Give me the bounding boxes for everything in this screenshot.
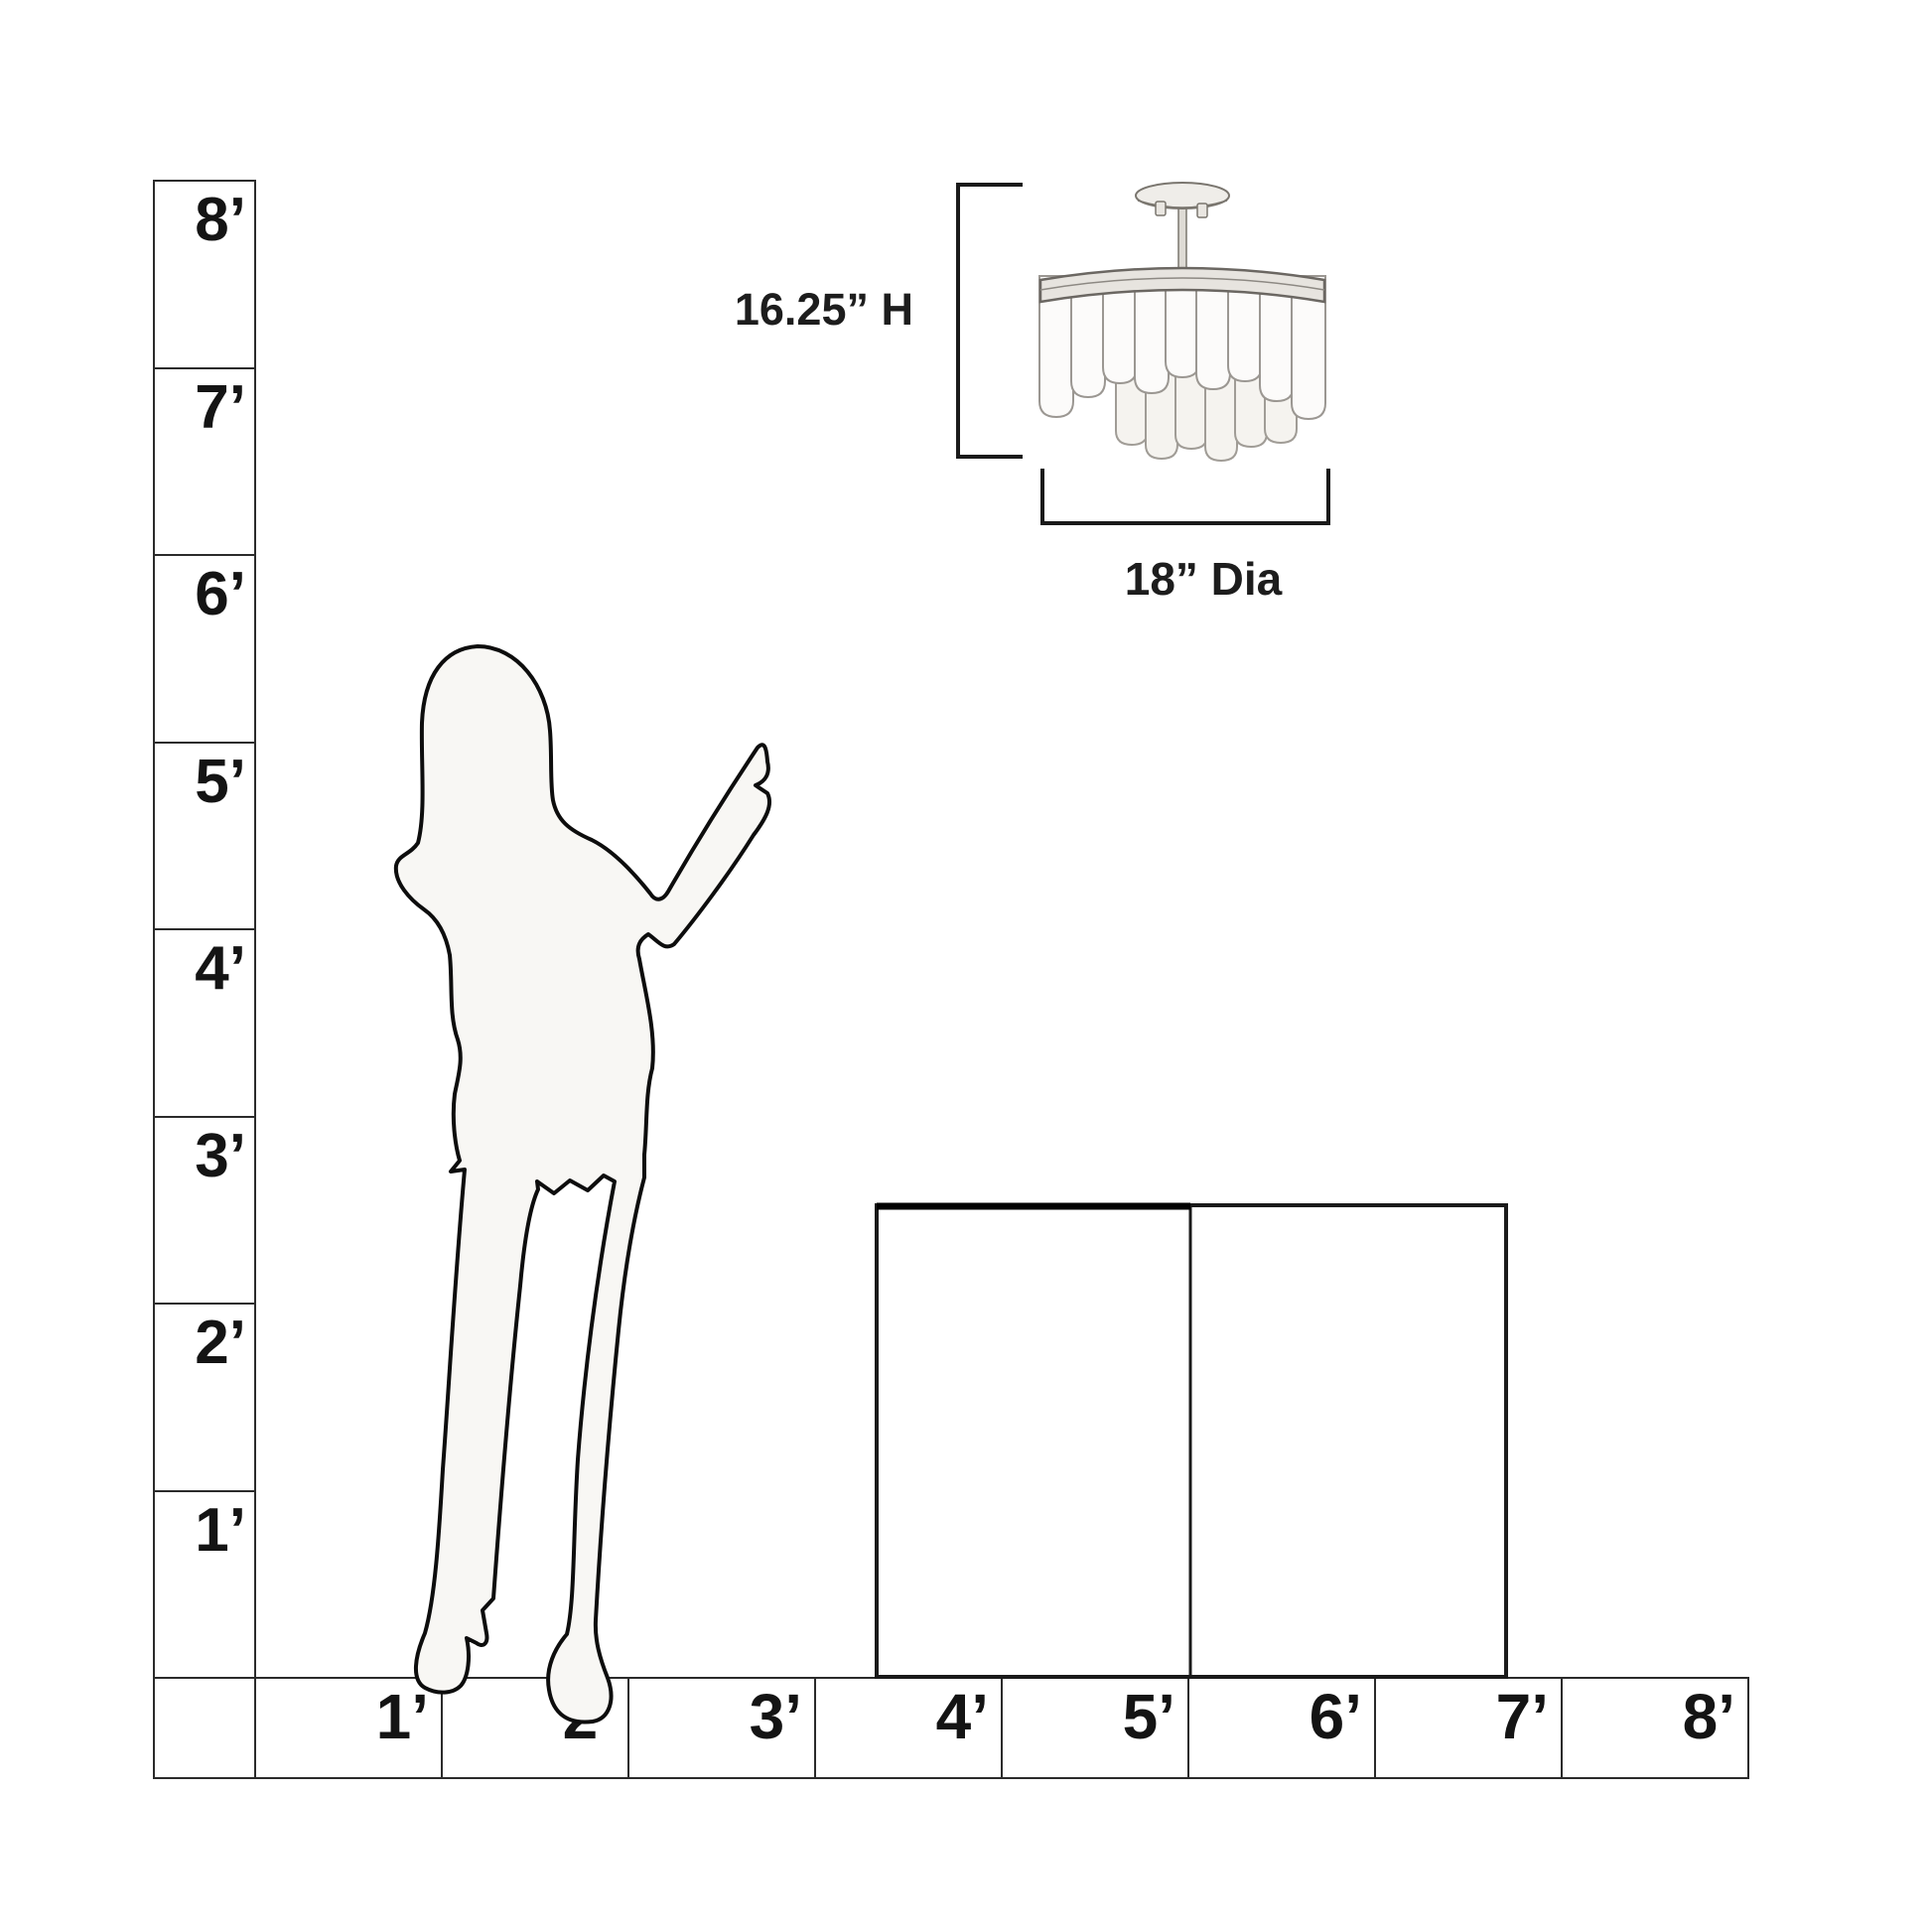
vertical-ruler-label: 5’ <box>195 748 246 816</box>
vertical-ruler-label: 4’ <box>195 934 246 1003</box>
horizontal-ruler-cell-6ft: 6’ <box>1189 1677 1376 1779</box>
vertical-ruler-cell-4ft: 4’ <box>153 928 256 1116</box>
fixture-diameter-label: 18” Dia <box>1054 556 1352 602</box>
horizontal-ruler: 1’ 2’ 3’ 4’ 5’ 6’ 7’ 8’ <box>153 1677 1749 1779</box>
vertical-ruler-label: 2’ <box>195 1309 246 1377</box>
vertical-ruler-cell-8ft: 8’ <box>153 180 256 367</box>
horizontal-ruler-label: 4’ <box>936 1685 989 1748</box>
horizontal-ruler-label: 8’ <box>1683 1685 1735 1748</box>
horizontal-ruler-label: 7’ <box>1496 1685 1549 1748</box>
person-silhouette <box>396 646 769 1723</box>
horizontal-ruler-label: 5’ <box>1123 1685 1175 1748</box>
height-dimension-bracket <box>958 185 1023 457</box>
fixture-band <box>1040 268 1324 302</box>
fixture-height-label: 16.25” H <box>735 287 913 332</box>
vertical-ruler-cell-7ft: 7’ <box>153 367 256 555</box>
vertical-ruler-cell-6ft: 6’ <box>153 554 256 742</box>
horizontal-ruler-cell-4ft: 4’ <box>816 1677 1003 1779</box>
vertical-ruler-cell-3ft: 3’ <box>153 1116 256 1304</box>
horizontal-ruler-cell-8ft: 8’ <box>1563 1677 1749 1779</box>
vertical-ruler-label: 1’ <box>195 1496 246 1565</box>
vertical-ruler-cell-1ft: 1’ <box>153 1490 256 1678</box>
reference-table <box>877 1205 1506 1677</box>
vertical-ruler: 8’ 7’ 6’ 5’ 4’ 3’ 2’ 1’ <box>153 180 256 1677</box>
horizontal-ruler-cell-2ft: 2’ <box>443 1677 629 1779</box>
dimension-lines <box>958 185 1328 523</box>
light-fixture <box>1039 183 1325 461</box>
vertical-ruler-cell-5ft: 5’ <box>153 742 256 929</box>
horizontal-ruler-label: 6’ <box>1310 1685 1362 1748</box>
diameter-dimension-bracket <box>1042 469 1328 523</box>
diagram-graphics <box>0 0 1932 1932</box>
horizontal-ruler-label: 3’ <box>750 1685 802 1748</box>
horizontal-ruler-cell-7ft: 7’ <box>1376 1677 1563 1779</box>
horizontal-ruler-label: 1’ <box>376 1685 429 1748</box>
vertical-ruler-cell-2ft: 2’ <box>153 1303 256 1490</box>
vertical-ruler-label: 3’ <box>195 1122 246 1190</box>
horizontal-ruler-corner-cell <box>153 1677 256 1779</box>
horizontal-ruler-label: 2’ <box>563 1685 616 1748</box>
fixture-feathers-upper-tier <box>1039 276 1325 419</box>
horizontal-ruler-cell-1ft: 1’ <box>256 1677 443 1779</box>
fixture-feathers-lower-tier <box>1116 338 1297 461</box>
horizontal-ruler-cell-5ft: 5’ <box>1003 1677 1189 1779</box>
horizontal-ruler-cell-3ft: 3’ <box>629 1677 816 1779</box>
fixture-stem <box>1178 207 1186 270</box>
size-guide-diagram: 8’ 7’ 6’ 5’ 4’ 3’ 2’ 1’ 1’ 2’ 3’ 4’ 5’ 6… <box>0 0 1932 1932</box>
vertical-ruler-label: 8’ <box>195 186 246 254</box>
vertical-ruler-label: 6’ <box>195 560 246 628</box>
vertical-ruler-label: 7’ <box>195 373 246 442</box>
fixture-canopy <box>1136 183 1229 217</box>
